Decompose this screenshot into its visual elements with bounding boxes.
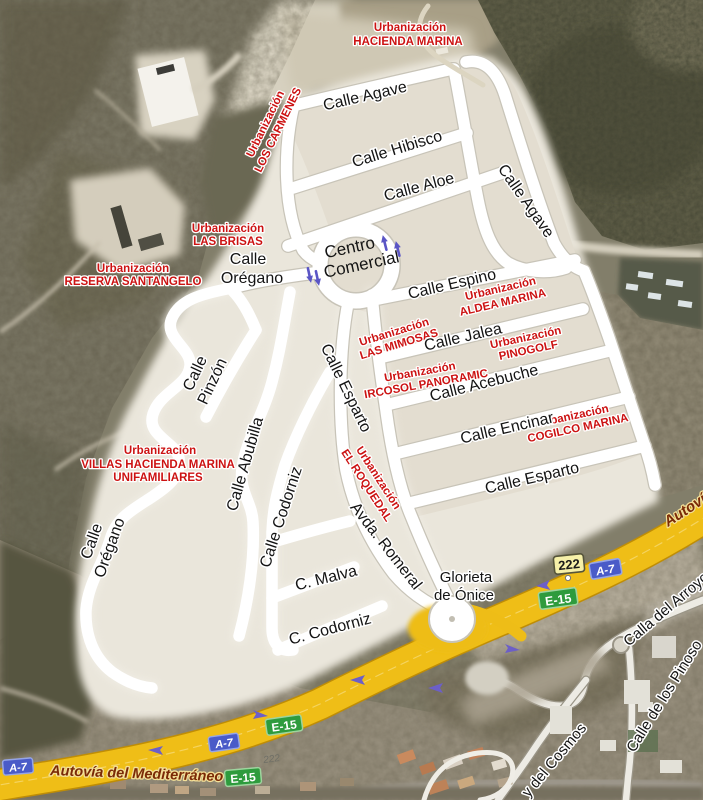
svg-text:Urbanización: Urbanización — [192, 223, 264, 235]
svg-text:Urbanización: Urbanización — [124, 445, 196, 457]
svg-text:222: 222 — [557, 556, 580, 573]
svg-text:UNIFAMILIARES: UNIFAMILIARES — [113, 472, 203, 484]
svg-text:A-7: A-7 — [8, 761, 29, 775]
svg-text:Urbanización: Urbanización — [374, 22, 446, 34]
svg-text:E-15: E-15 — [230, 770, 257, 786]
svg-text:RESERVA SANTANGELO: RESERVA SANTANGELO — [65, 276, 202, 288]
svg-text:Glorieta: Glorieta — [440, 569, 493, 586]
svg-text:LAS BRISAS: LAS BRISAS — [193, 236, 263, 248]
svg-text:HACIENDA MARINA: HACIENDA MARINA — [353, 36, 462, 48]
svg-text:Orégano: Orégano — [221, 270, 283, 287]
svg-text:Urbanización: Urbanización — [97, 263, 169, 275]
svg-text:Calle: Calle — [230, 251, 267, 268]
svg-text:VILLAS HACIENDA MARINA: VILLAS HACIENDA MARINA — [81, 459, 235, 471]
svg-text:de Ónice: de Ónice — [434, 587, 494, 604]
